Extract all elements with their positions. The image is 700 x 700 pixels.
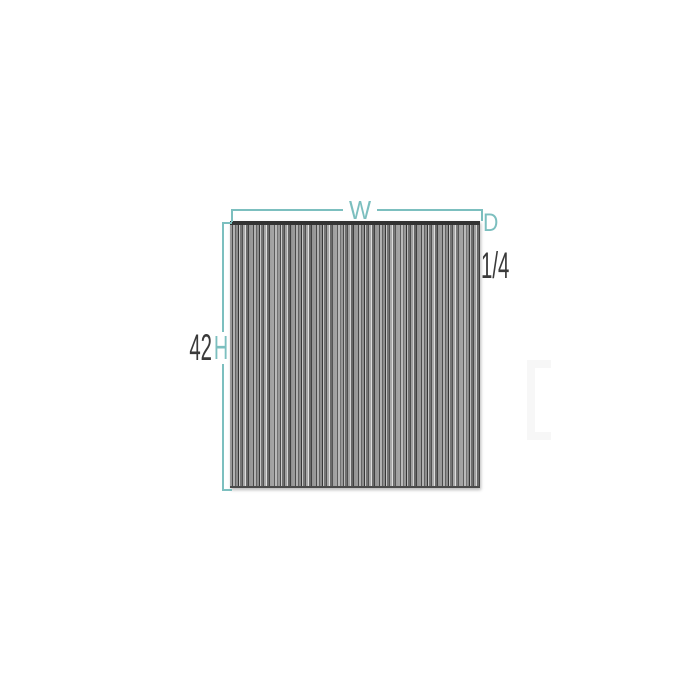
width-label: W xyxy=(342,197,378,223)
height-label: H xyxy=(212,331,230,364)
height-dimension-line-bottom xyxy=(222,364,224,491)
depth-label: D xyxy=(483,211,498,236)
depth-value-label: 1/4 xyxy=(481,247,509,284)
height-dimension-line-top xyxy=(222,222,224,332)
faint-bracket-artifact xyxy=(527,360,551,440)
width-dimension-line-right xyxy=(377,209,483,211)
width-dimension-line-left xyxy=(231,209,343,211)
height-dimension-arm-bottom xyxy=(222,489,232,491)
diagram-canvas: W D H 42 1/4 xyxy=(0,0,700,700)
width-dimension-tick-left xyxy=(231,209,233,222)
panel-face xyxy=(230,221,480,488)
height-dimension-arm-top xyxy=(222,222,232,224)
height-value-label: 42 xyxy=(172,329,212,366)
